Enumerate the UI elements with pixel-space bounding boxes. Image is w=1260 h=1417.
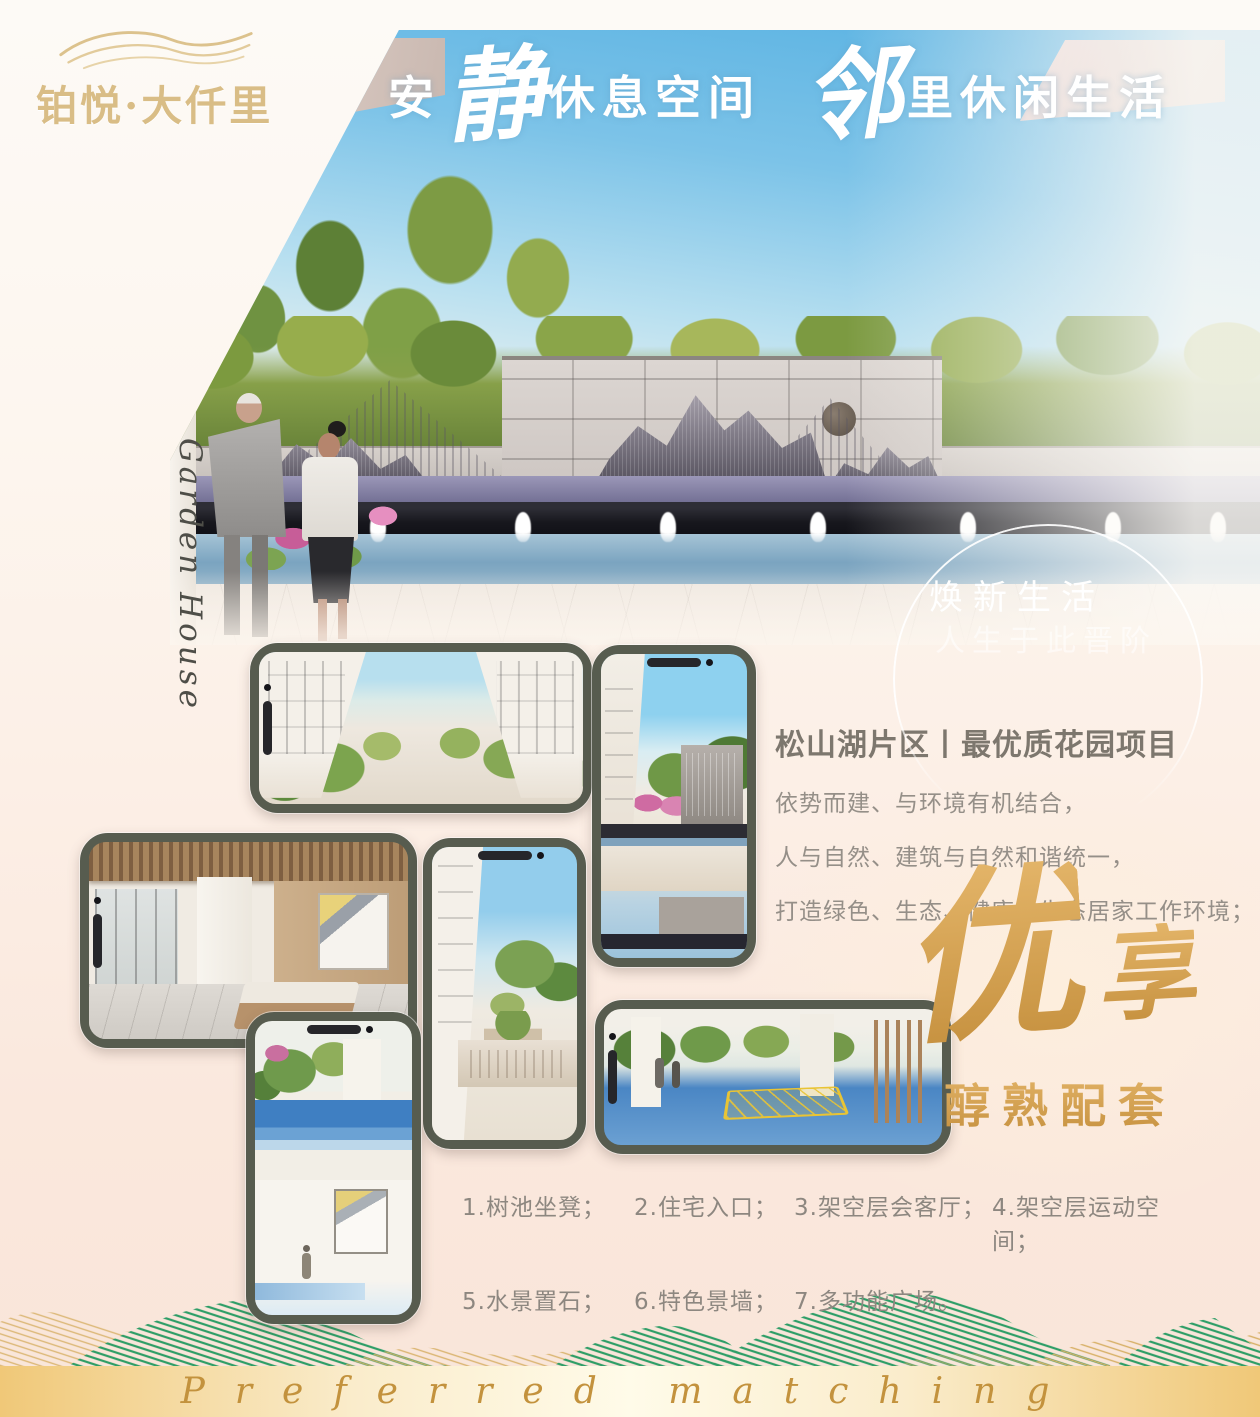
- render-building: [259, 652, 366, 798]
- highlight-brush-char: 享: [1093, 921, 1198, 1026]
- render-person-figure: [655, 1058, 664, 1088]
- woman-figure: [302, 457, 358, 541]
- render-landscape-wall: [458, 1040, 577, 1087]
- footer-script-text: Preferred matching: [0, 1366, 1260, 1417]
- render-person-figure: [672, 1061, 680, 1088]
- slogan-circle: 焕新生活 人生于此晋阶: [893, 524, 1203, 834]
- fountain-jet: [810, 512, 826, 542]
- man-figure: [224, 535, 240, 635]
- render-blue-floor: [255, 1283, 365, 1301]
- brand-name: 铂悦·大仟里: [36, 72, 286, 132]
- render-child-figure: [302, 1253, 311, 1279]
- highlight-calligraphy: 优 享 醇熟配套: [890, 868, 1230, 1138]
- render-pool: [601, 934, 747, 949]
- phone-mockup-waterwall: [592, 645, 756, 967]
- slogan-line-1: 焕新生活: [929, 570, 1105, 619]
- phone-camera-dot: [264, 684, 271, 691]
- brand-wave-icon: [50, 22, 262, 72]
- render-blue-floor: [255, 1100, 412, 1150]
- headline-text: 安: [388, 62, 441, 128]
- man-figure: [252, 535, 268, 637]
- phone-notch: [647, 658, 701, 667]
- render-building: [601, 654, 645, 849]
- fountain-jet: [660, 512, 676, 542]
- render-wall-art: [334, 1189, 388, 1255]
- phone-camera-dot: [366, 1026, 373, 1033]
- render-column: [800, 1014, 834, 1096]
- render-feature-wall: [681, 745, 742, 824]
- phone-camera-dot: [609, 1033, 616, 1040]
- render-feature-wall: [659, 897, 744, 933]
- slogan-line-2: 人生于此晋阶: [935, 616, 1157, 660]
- render-wall-art: [318, 893, 389, 970]
- playground-render-image: [255, 1021, 412, 1315]
- fountain-jet: [515, 512, 531, 542]
- headline-text: 里休闲生活: [907, 62, 1172, 128]
- render-building: [476, 652, 583, 798]
- feature-item: 6.特色景墙；: [634, 1282, 794, 1316]
- woman-figure: [318, 599, 327, 641]
- phone-mockup-street: [250, 643, 592, 813]
- render-building: [432, 847, 490, 1140]
- phone-mockup-entrance: [423, 838, 586, 1149]
- people-figures: [190, 385, 380, 640]
- headline-brush-char: 静: [442, 47, 548, 144]
- street-render-image: [259, 652, 583, 804]
- fountain-jet: [1210, 512, 1226, 542]
- phone-notch: [93, 914, 102, 968]
- poster-page: 铂悦·大仟里: [0, 0, 1260, 1417]
- entrance-render-image: [432, 847, 577, 1140]
- woman-figure: [318, 433, 340, 459]
- render-wood-ceiling: [89, 842, 408, 881]
- man-figure: [208, 419, 286, 537]
- highlight-subtitle: 醇熟配套: [944, 1070, 1176, 1136]
- waterwall-render-image: [601, 654, 747, 958]
- feature-item: 7.多功能广场。: [794, 1282, 992, 1316]
- phone-notch: [263, 701, 272, 755]
- feature-item: 4.架空层运动空间；: [992, 1188, 1162, 1256]
- render-glass-wall: [95, 889, 178, 991]
- garden-house-script: Garden House: [172, 438, 208, 712]
- feature-item: 3.架空层会客厅；: [794, 1188, 992, 1256]
- phone-notch: [307, 1025, 361, 1034]
- feature-item: 2.住宅入口；: [634, 1188, 794, 1256]
- feature-item: 1.树池坐凳；: [462, 1188, 634, 1256]
- feature-item: 5.水景置石；: [462, 1282, 634, 1316]
- brand-logo: 铂悦·大仟里: [36, 22, 286, 132]
- highlight-brush-char: 优: [892, 858, 1089, 1055]
- phone-mockup-playground: [246, 1012, 421, 1324]
- render-plaza: [601, 846, 747, 892]
- phone-camera-dot: [706, 659, 713, 666]
- headline-text: 休息空间: [549, 62, 761, 128]
- footer-band: Preferred matching: [0, 1366, 1260, 1417]
- phone-notch: [608, 1050, 617, 1104]
- render-yellow-bench: [723, 1086, 849, 1119]
- hero-headline: 安 静 休息空间 邻 里休闲生活: [388, 50, 1172, 140]
- phone-camera-dot: [94, 897, 101, 904]
- man-figure: [236, 393, 262, 423]
- fountain-jet: [960, 512, 976, 542]
- lounge-render-image: [89, 842, 408, 1039]
- phone-camera-dot: [537, 852, 544, 859]
- woman-figure: [308, 537, 354, 603]
- woman-figure: [338, 599, 347, 639]
- headline-brush-char: 邻: [800, 47, 906, 144]
- phone-notch: [478, 851, 532, 860]
- features-list: 1.树池坐凳； 2.住宅入口； 3.架空层会客厅； 4.架空层运动空间； 5.水…: [462, 1188, 1162, 1316]
